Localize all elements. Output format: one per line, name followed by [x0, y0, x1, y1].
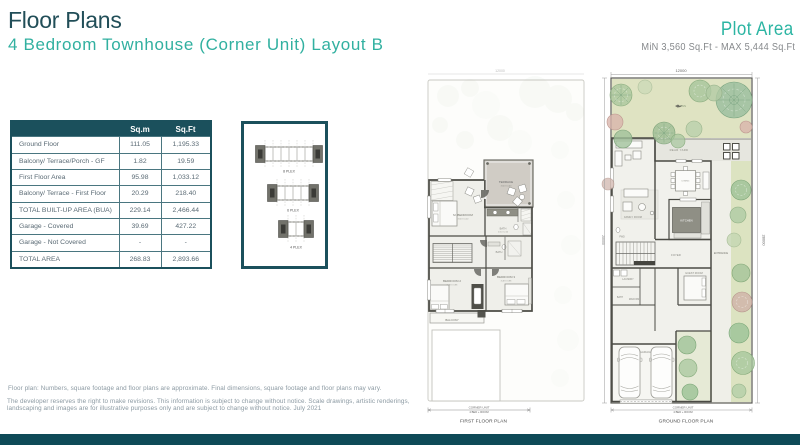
svg-text:4 BED + ROOM: 4 BED + ROOM: [469, 410, 489, 414]
svg-text:12000: 12000: [495, 69, 505, 73]
svg-text:FOYER: FOYER: [671, 253, 681, 257]
svg-text:DINING: DINING: [682, 181, 690, 183]
svg-text:4 BED + ROOM: 4 BED + ROOM: [673, 410, 693, 414]
svg-text:M. BEDROOM: M. BEDROOM: [453, 213, 473, 217]
svg-text:CORNER UNIT: CORNER UNIT: [469, 406, 490, 410]
svg-text:GROUND FLOOR PLAN: GROUND FLOOR PLAN: [659, 419, 714, 425]
svg-text:28000: 28000: [762, 234, 767, 246]
svg-text:TERRACE: TERRACE: [499, 180, 513, 184]
svg-text:FAMILY ROOM: FAMILY ROOM: [624, 215, 642, 219]
svg-text:CORNER UNIT: CORNER UNIT: [673, 406, 694, 410]
svg-text:6 PLEX: 6 PLEX: [287, 209, 300, 213]
svg-text:BATH: BATH: [500, 227, 507, 231]
svg-text:3.48 X 3.88: 3.48 X 3.88: [501, 281, 512, 283]
svg-text:28000: 28000: [601, 235, 605, 245]
svg-text:2.55 X 2.20: 2.55 X 2.20: [498, 232, 509, 234]
svg-text:ENTRANCE: ENTRANCE: [714, 251, 729, 255]
svg-text:KITCHEN: KITCHEN: [680, 219, 692, 223]
svg-text:12000: 12000: [675, 68, 687, 73]
svg-text:FIRST FLOOR PLAN: FIRST FLOOR PLAN: [460, 419, 508, 425]
svg-text:BATH: BATH: [617, 296, 623, 299]
svg-text:4 PLEX: 4 PLEX: [290, 246, 303, 250]
svg-text:3.60 X 4.20: 3.60 X 4.20: [458, 219, 469, 221]
svg-text:GUEST ROOM: GUEST ROOM: [685, 271, 703, 275]
svg-text:BEDROOM 3: BEDROOM 3: [497, 275, 515, 279]
svg-text:3.48 X 3.88: 3.48 X 3.88: [447, 285, 458, 287]
svg-text:PWD: PWD: [619, 236, 625, 239]
svg-text:REAR YARD: REAR YARD: [670, 148, 689, 152]
svg-text:GARAGE: GARAGE: [640, 350, 653, 354]
svg-text:8 PLEX: 8 PLEX: [283, 170, 296, 174]
svg-text:LAUNDRY: LAUNDRY: [622, 278, 634, 281]
svg-text:BEDROOM 2: BEDROOM 2: [443, 279, 461, 283]
svg-text:BALCONY: BALCONY: [445, 318, 459, 322]
svg-text:BATH: BATH: [496, 250, 503, 254]
svg-text:MAID RM: MAID RM: [629, 298, 639, 301]
